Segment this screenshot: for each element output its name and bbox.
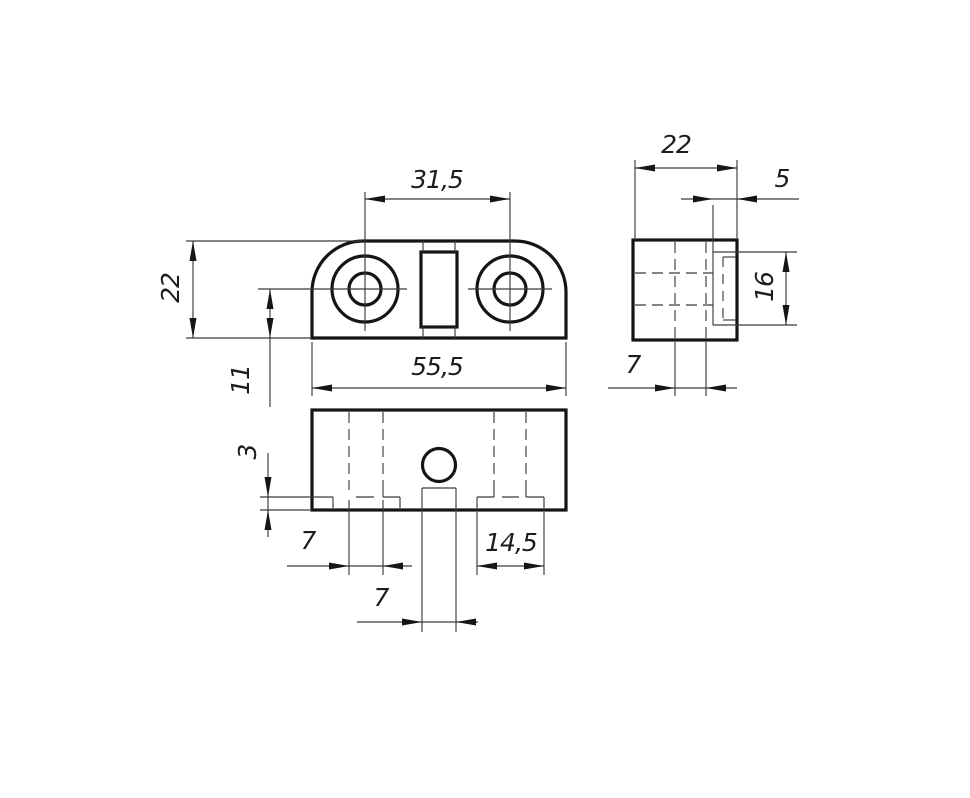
dimension-slot-width: 7: [357, 583, 478, 626]
top-view-slot: [421, 252, 457, 327]
dim-label-step-width: 14,5: [485, 528, 537, 557]
dimension-step-height: 3: [233, 444, 272, 537]
front-view: [260, 410, 566, 632]
front-face-hole: [423, 449, 456, 482]
front-hidden-lines: [349, 412, 526, 497]
drawing-canvas: 31,5 22 11 55,5: [0, 0, 970, 798]
dim-label-slot-width: 7: [374, 583, 390, 612]
dim-label-side-hole-span: 7: [626, 350, 642, 379]
dimension-step-width: 14,5: [477, 512, 544, 575]
dimension-slot-depth: 5: [681, 164, 799, 203]
dimension-hole-spacing: 31,5: [365, 165, 510, 203]
front-bottom-step: [260, 497, 544, 510]
dim-label-hole-diameter: 7: [301, 526, 317, 555]
dimension-plate-width: 55,5: [312, 342, 566, 396]
dim-label-hole-offset: 11: [226, 365, 255, 395]
dim-label-plate-height: 22: [156, 273, 185, 303]
side-hidden-lines: [635, 242, 713, 338]
dim-label-step-height: 3: [233, 444, 262, 459]
dimension-body-depth: 22: [635, 130, 737, 238]
dim-label-hole-spacing: 31,5: [411, 165, 463, 194]
dimension-hole-offset: 11: [226, 289, 274, 407]
dim-label-slot-height: 16: [750, 272, 779, 302]
dimension-slot-height: 16: [750, 252, 790, 325]
top-view: [258, 192, 566, 338]
dimension-side-hole-span: 7: [608, 342, 737, 396]
technical-drawing-page: 31,5 22 11 55,5: [0, 0, 970, 798]
dim-label-body-depth: 22: [661, 130, 691, 159]
hole-centerlines: [258, 192, 552, 331]
front-view-outline: [312, 410, 566, 510]
dim-label-plate-width: 55,5: [411, 352, 463, 381]
dim-label-slot-depth: 5: [775, 164, 790, 193]
